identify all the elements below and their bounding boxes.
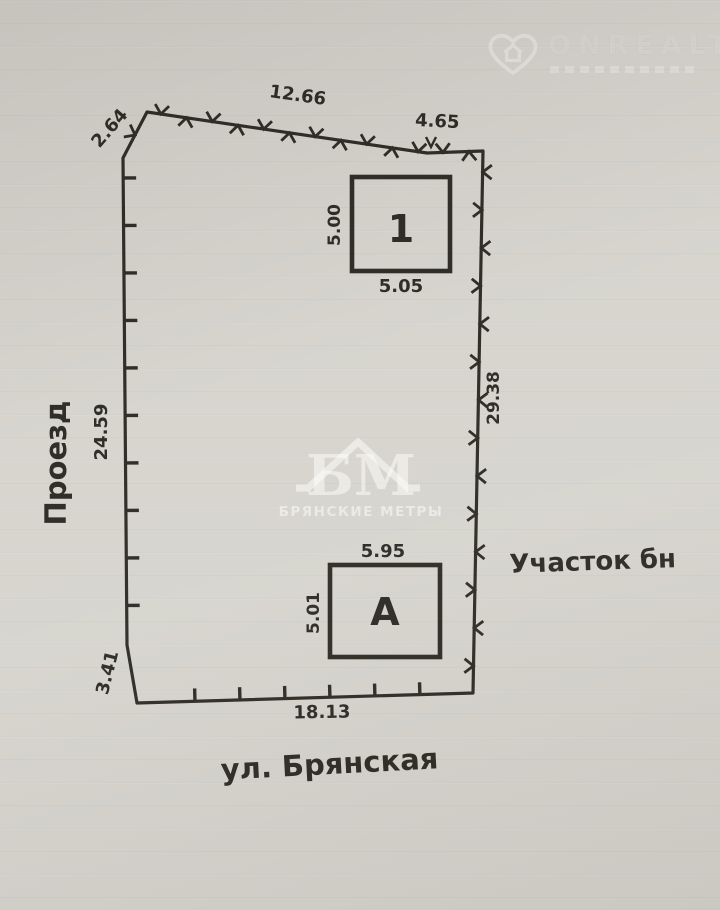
fence-marks bbox=[124, 104, 492, 673]
building-1-label: 1 bbox=[388, 207, 414, 251]
building-1-bottom-dim: 5.05 bbox=[379, 276, 423, 297]
plan-drawing: 1 5.00 5.05 А 5.95 5.01 12.66 4.65 2.64 … bbox=[0, 0, 720, 910]
parcel-boundary bbox=[123, 112, 483, 703]
dim-top-right: 4.65 bbox=[415, 110, 460, 133]
parcel-label: Участок бн bbox=[509, 544, 677, 580]
dim-arrow bbox=[426, 137, 436, 147]
dim-left-main: 24.59 bbox=[91, 404, 112, 461]
building-a-top-dim: 5.95 bbox=[361, 541, 405, 562]
building-a-label: А bbox=[370, 590, 400, 634]
building-a-left-dim: 5.01 bbox=[304, 592, 324, 634]
scanned-site-plan: ONREALT 1 5.00 5.05 А 5.95 5.01 12.66 4.… bbox=[0, 0, 720, 910]
dim-top-main: 12.66 bbox=[268, 81, 327, 110]
street-label: ул. Брянская bbox=[220, 741, 439, 786]
dim-bottom-main: 18.13 bbox=[293, 702, 350, 724]
dim-left-bottom: 3.41 bbox=[92, 649, 123, 697]
dim-top-left-diagonal: 2.64 bbox=[87, 105, 132, 152]
driveway-label: Проезд bbox=[39, 401, 73, 526]
dim-right-main: 29.38 bbox=[484, 371, 504, 425]
building-1-left-dim: 5.00 bbox=[325, 204, 345, 246]
